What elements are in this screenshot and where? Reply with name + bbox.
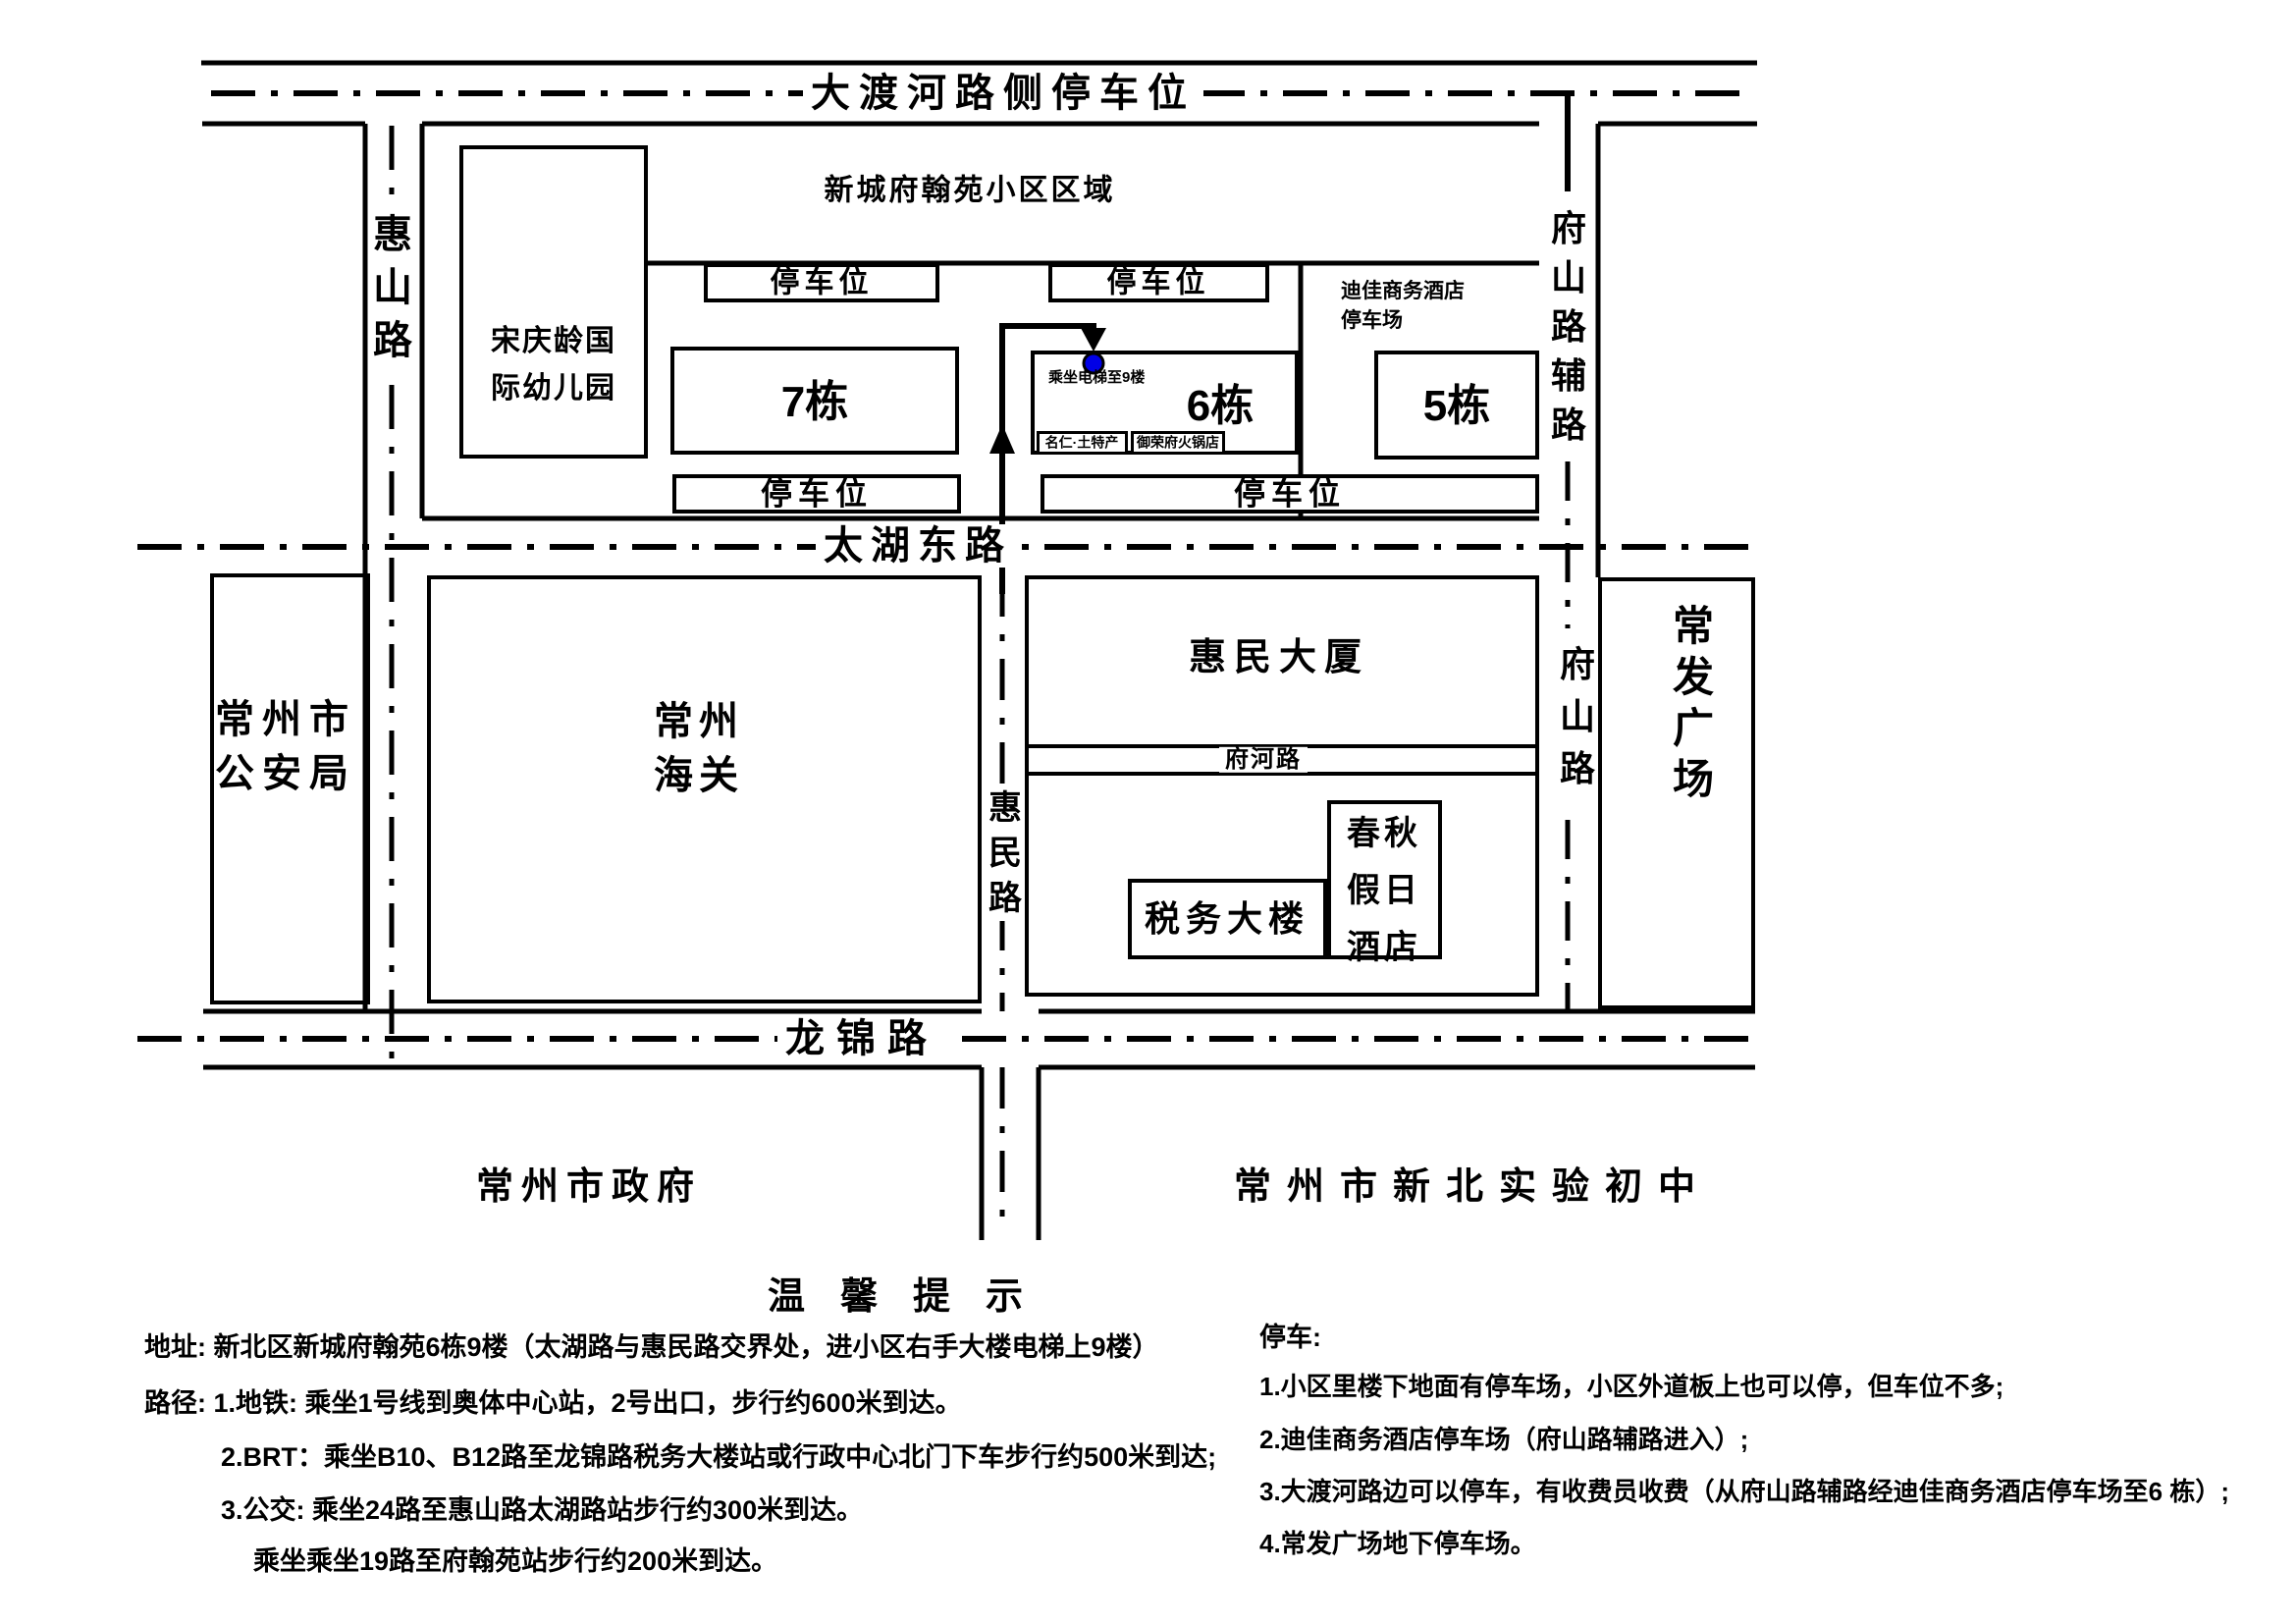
address-line: 地址: 新北区新城府翰苑6栋9楼（太湖路与惠民路交界处，进小区右手大楼电梯上9楼…	[144, 1333, 1159, 1363]
fuhe-road-label: 府河路	[1219, 747, 1308, 773]
tips-title: 温馨提示	[768, 1277, 1058, 1319]
community-area-label: 新城府翰苑小区区域	[825, 175, 1116, 207]
police-bureau-label: 常州市公安局	[214, 693, 357, 801]
parking-label-bottom-left: 停车位	[761, 476, 873, 511]
parking-note-1: 1.小区里楼下地面有停车场，小区外道板上也可以停，但车位不多;	[1259, 1373, 2003, 1401]
taihu-road-label: 太湖东路	[816, 524, 1020, 568]
shop-mingren-label: 名仁·土特产	[1045, 435, 1119, 450]
parking-label-top-left: 停车位	[771, 267, 874, 299]
route-line-3: 3.公交: 乘坐24路至惠山路太湖路站步行约300米到达。	[221, 1496, 863, 1526]
parking-note-4: 4.常发广场地下停车场。	[1259, 1530, 1536, 1558]
route-line-2: 2.BRT：乘坐B10、B12路至龙锦路税务大楼站或行政中心北门下车步行约500…	[221, 1443, 1216, 1473]
customs-label: 常州海关	[653, 695, 745, 803]
fushanfulu-road-label: 府山路辅路	[1549, 204, 1588, 450]
huishan-road-label: 惠山路	[371, 208, 414, 367]
route-line-4: 乘坐乘坐19路至府翰苑站步行约200米到达。	[253, 1547, 777, 1577]
dijia-parking-label: 迪佳商务酒店停车场	[1341, 277, 1472, 336]
city-gov-label: 常州市政府	[476, 1167, 702, 1209]
longjin-road-label: 龙锦路	[777, 1017, 946, 1060]
elevator-note-label: 乘坐电梯至9楼	[1048, 370, 1145, 387]
kindergarten-label: 宋庆龄国际幼儿园	[490, 318, 617, 412]
parking-notes-title: 停车:	[1259, 1324, 1321, 1353]
route-arrow-end-arrowhead	[1081, 328, 1106, 352]
parking-note-2: 2.迪佳商务酒店停车场（府山路辅路进入）;	[1259, 1426, 1748, 1454]
hotel-label: 春秋假日酒店	[1346, 805, 1422, 976]
route-arrow-mid-arrowhead	[989, 424, 1015, 454]
fushan-road-label: 府山路	[1558, 638, 1597, 794]
huimin-building-label: 惠民大厦	[1189, 638, 1369, 679]
parking-note-3: 3.大渡河路边可以停车，有收费员收费（从府山路辅路经迪佳商务酒店停车场至6 栋）…	[1259, 1478, 2229, 1506]
parking-label-bottom-right: 停车位	[1234, 476, 1346, 511]
parking-label-top-right: 停车位	[1107, 267, 1210, 299]
school-label: 常州市新北实验初中	[1234, 1167, 1711, 1209]
tax-building-label: 税务大楼	[1145, 899, 1309, 939]
building-6-label: 6栋	[1187, 383, 1254, 430]
map-canvas: 大渡河路侧停车位 惠山路 府山路辅路 太湖东路 惠民路 府河路 府山路 龙锦路 …	[0, 0, 2296, 1624]
shop-hotpot-label: 御荣府火锅店	[1137, 435, 1219, 450]
building-5-label: 5栋	[1423, 383, 1490, 430]
huimin-road-label: 惠民路	[987, 785, 1024, 921]
changfa-plaza-label: 常发广场	[1671, 601, 1716, 805]
daduhe-road-label: 大渡河路侧停车位	[803, 72, 1203, 115]
route-line-1: 路径: 1.地铁: 乘坐1号线到奥体中心站，2号出口，步行约600米到达。	[144, 1389, 962, 1419]
building-7-label: 7栋	[781, 379, 848, 426]
